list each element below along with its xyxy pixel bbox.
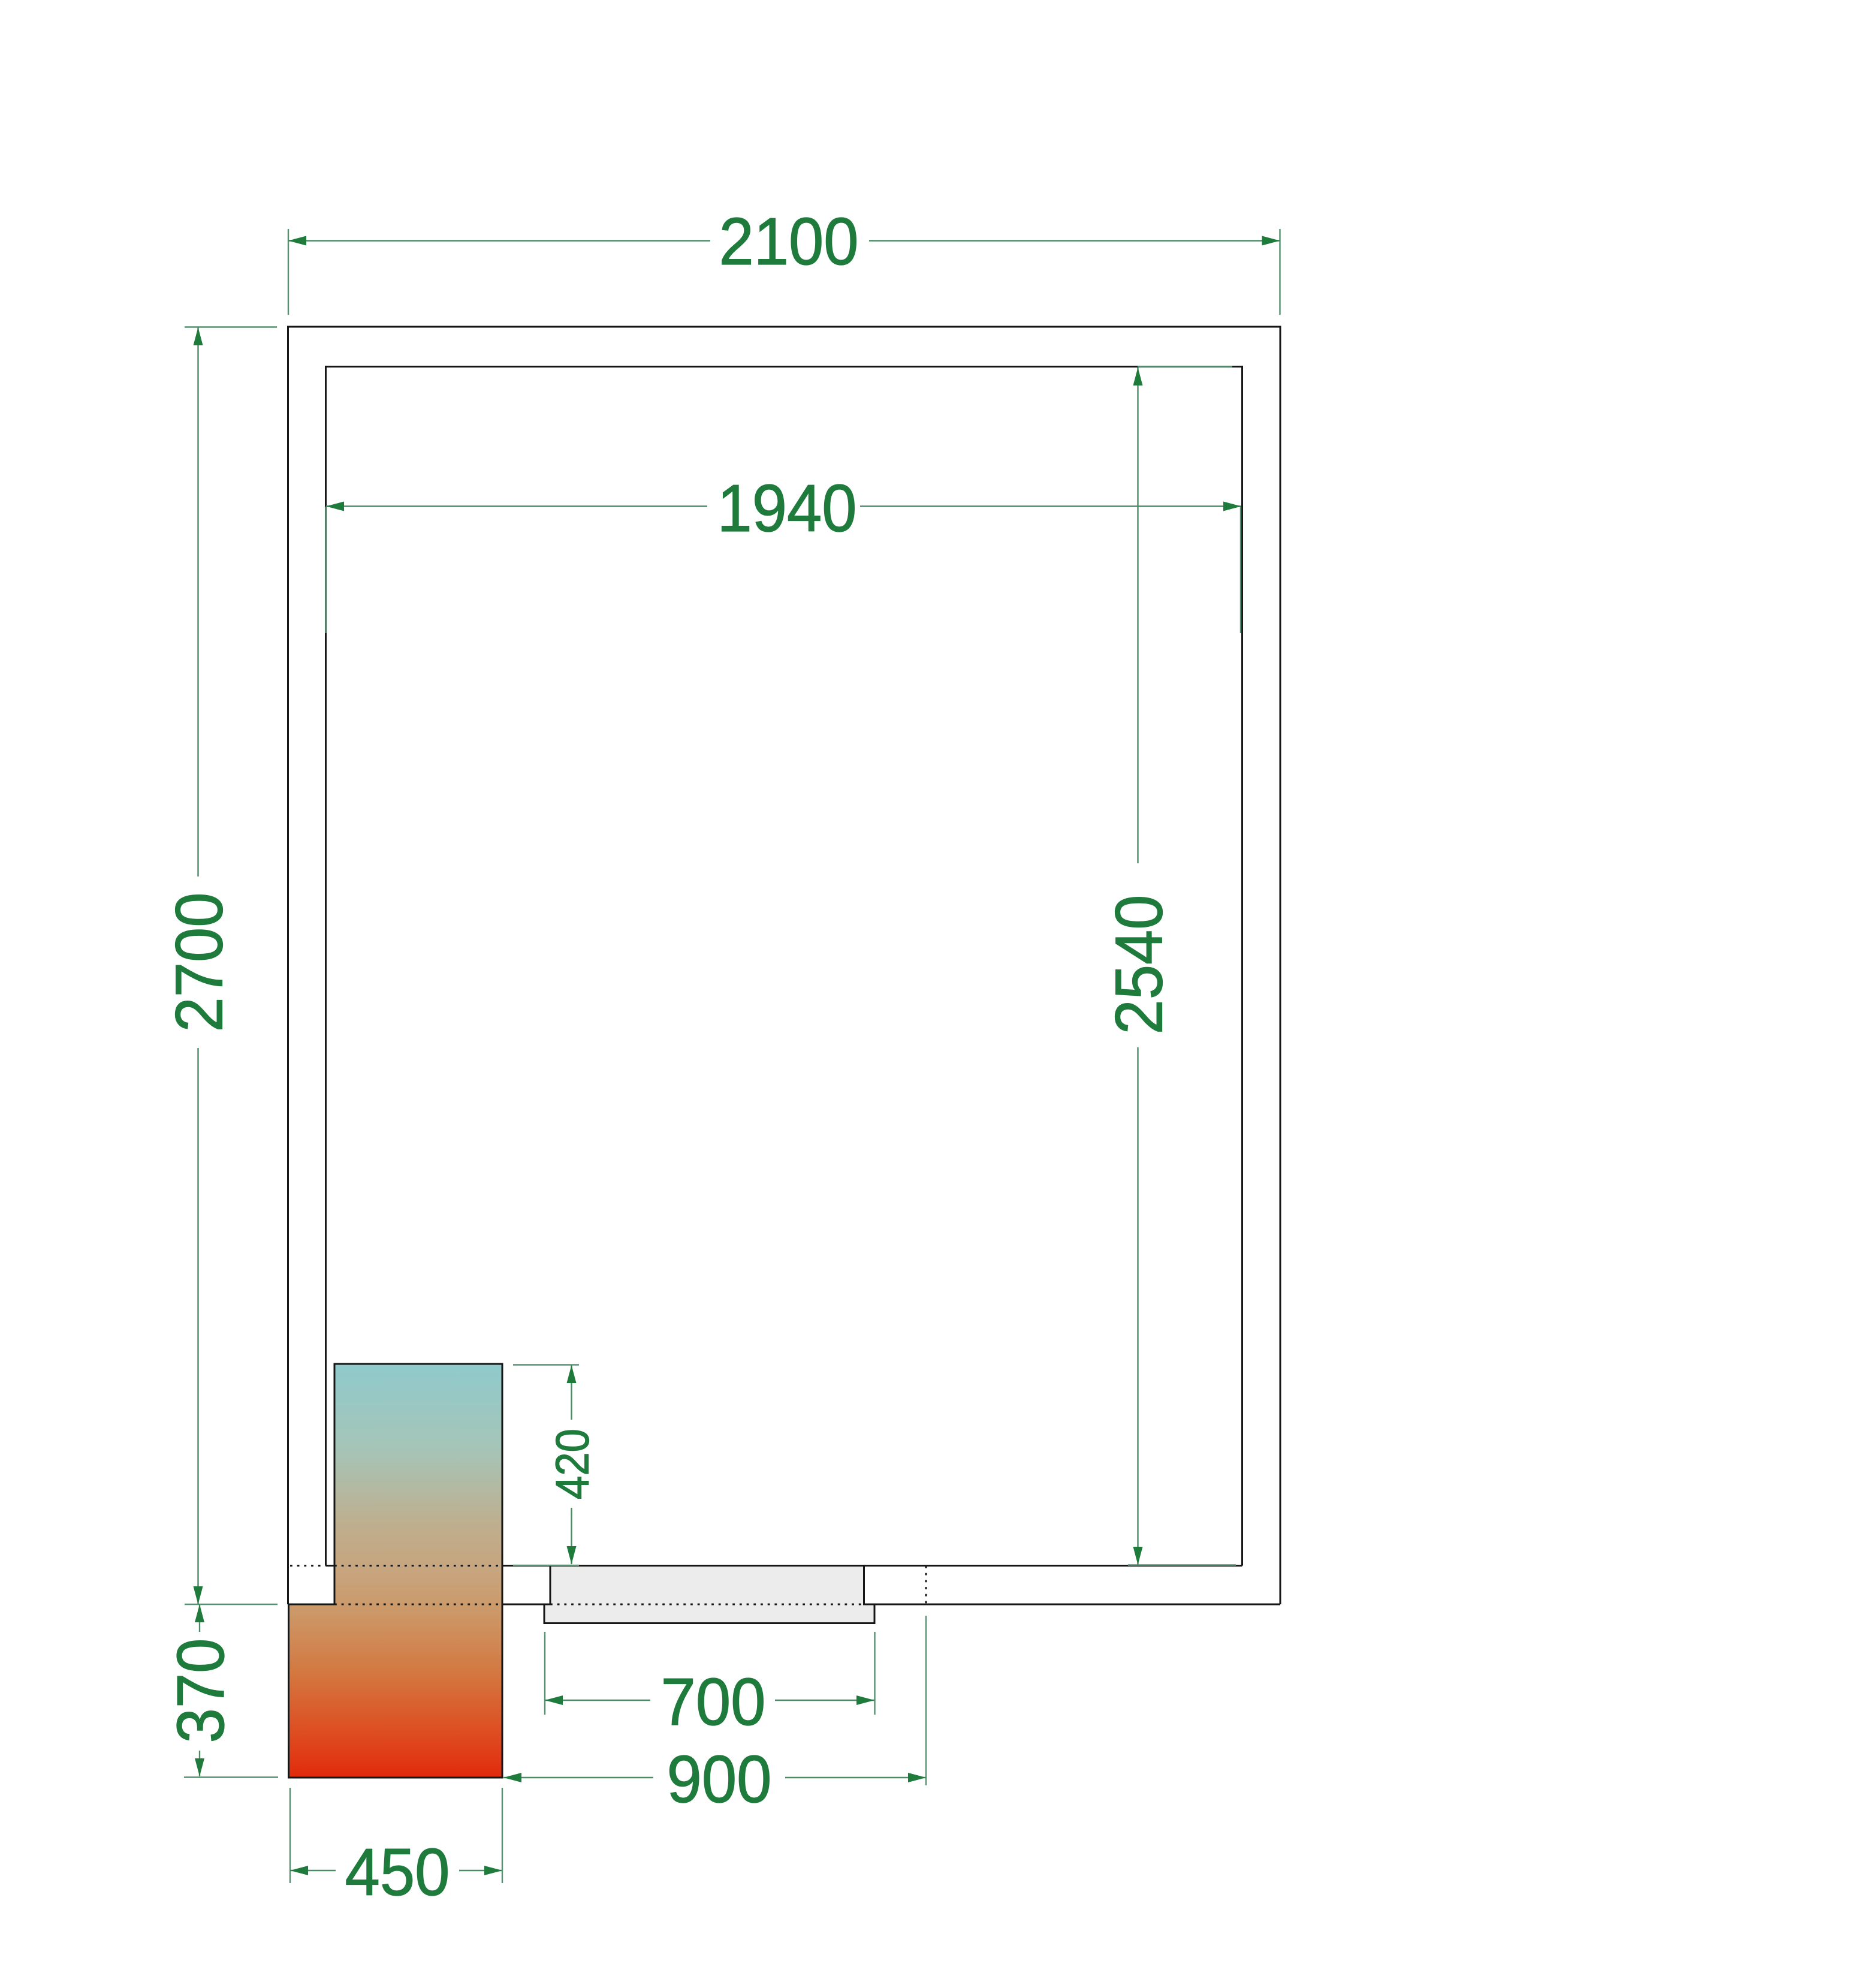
- svg-text:1940: 1940: [717, 471, 857, 546]
- svg-text:2700: 2700: [162, 893, 237, 1032]
- svg-text:700: 700: [661, 1665, 766, 1739]
- svg-text:450: 450: [345, 1835, 450, 1909]
- svg-text:900: 900: [667, 1742, 772, 1817]
- svg-text:420: 420: [546, 1429, 599, 1499]
- svg-text:2100: 2100: [719, 204, 859, 279]
- svg-text:2540: 2540: [1102, 895, 1177, 1035]
- svg-text:370: 370: [164, 1638, 238, 1743]
